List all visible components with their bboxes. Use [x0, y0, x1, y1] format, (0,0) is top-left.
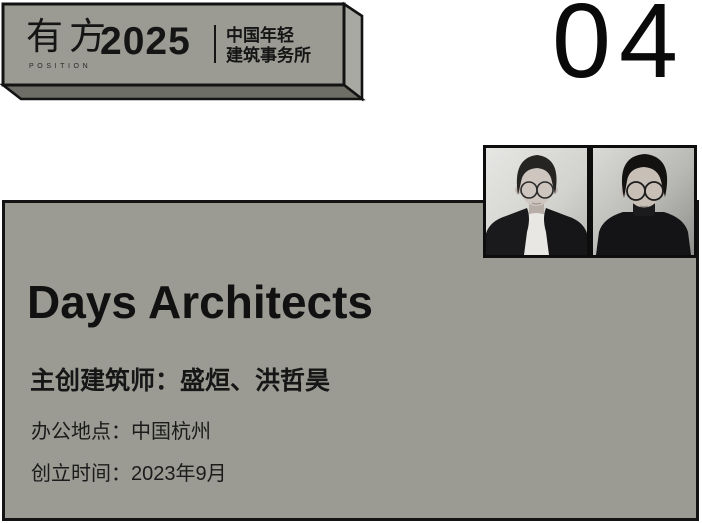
series-banner: 有方 POSITION 2025 中国年轻 建筑事务所: [0, 0, 366, 104]
lead-architects-line: 主创建筑师：盛烜、洪哲昊: [30, 361, 330, 397]
slide-page: 有方 POSITION 2025 中国年轻 建筑事务所 04: [0, 0, 702, 523]
portrait-right-photo: [590, 145, 697, 258]
banner-content: 有方 POSITION 2025 中国年轻 建筑事务所: [0, 0, 344, 85]
founded-date-line: 创立时间：2023年9月: [31, 457, 227, 486]
banner-divider: [214, 25, 216, 63]
office-location-line: 办公地点：中国杭州: [31, 415, 211, 444]
page-number: 04: [552, 0, 686, 94]
brand-logo-en: POSITION: [29, 63, 91, 70]
architect-portraits: [483, 145, 697, 258]
firm-name: Days Architects: [27, 277, 373, 328]
banner-series-line2: 建筑事务所: [226, 46, 311, 66]
portrait-right-illustration: [593, 148, 694, 255]
portrait-left-illustration: [486, 148, 587, 255]
portrait-left-photo: [483, 145, 590, 258]
banner-year: 2025: [100, 22, 191, 61]
banner-series-title: 中国年轻 建筑事务所: [226, 26, 311, 66]
banner-series-line1: 中国年轻: [226, 26, 311, 46]
